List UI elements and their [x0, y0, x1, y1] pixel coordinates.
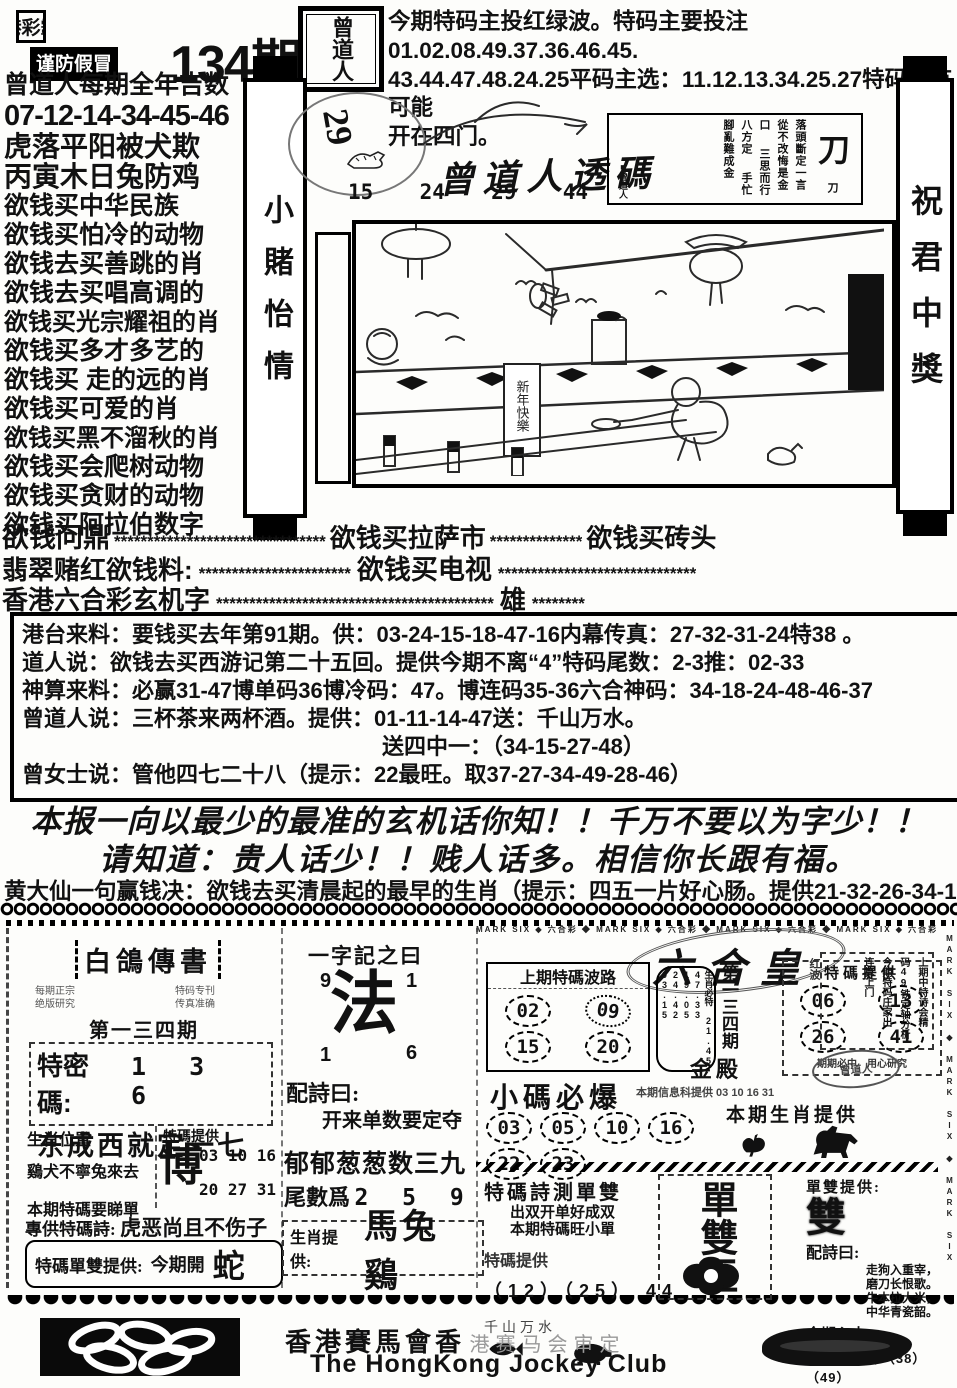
- horse-icon: [806, 1124, 862, 1158]
- seal-text: 曾道人: [330, 16, 352, 82]
- pigeon-issue: 第一三四期: [89, 1014, 199, 1043]
- left-banner-text: 小賭怡情: [253, 194, 297, 402]
- masthead-line1: 香港彩霸王: [16, 10, 176, 43]
- left-line: 欲钱买 走的远的肖: [4, 366, 240, 395]
- left-line: 欲钱买贪财的动物: [4, 482, 240, 511]
- tipsheet-page: 香港彩霸王 谨防假冒 134期 曾道人 今期特码主投红绿波。特码主要投注01.0…: [0, 0, 957, 1388]
- pigeon-ds-animal: 蛇: [213, 1241, 245, 1287]
- chain-divider: [0, 902, 957, 917]
- left-line: 曾道人每期全年吉数: [4, 70, 240, 100]
- fa-sx-animals: 馬兔鷄: [364, 1199, 476, 1297]
- marksix-strip-right: MARK SIX ◆ MARK SIX ◆ MARK SIX ◆ MARK SI…: [945, 934, 954, 1274]
- rightcol-seal-text: 曾道人: [839, 1060, 873, 1078]
- pigeon-code-box: 特密碼: 1 3 6 东成西就定一七: [29, 1042, 273, 1126]
- pigeon-nums1: 03 10 16: [199, 1146, 276, 1165]
- bolou-box: 上期特碼波路 02 09 15 20: [486, 962, 650, 1072]
- fa-shengxiao-box: 生肖提供: 馬兔鷄: [282, 1220, 484, 1276]
- pigeon-smalltext-left: 每期正宗 绝版研究: [35, 986, 75, 1011]
- tips-info-box: 港台来料：要钱买去年第91期。供：03-24-15-18-47-16内幕传真：2…: [10, 612, 957, 802]
- fa-panel: 一字記之曰 9 1 法 1 6 配詩曰: 开来单数要定夺 郁郁葱葱数三九 尾數爲…: [278, 928, 478, 1288]
- rightcol-poem3: 牛本拉大米，: [806, 1291, 938, 1305]
- flower-ornament-icon: [676, 1254, 746, 1298]
- pigeon-code-label: 特密碼:: [37, 1046, 117, 1120]
- mini-title: 生肖必特: [704, 970, 714, 1006]
- knife-signature: ■曾道人: [617, 162, 630, 199]
- info-line: 曾女士说：管他四七二十八（提示：22最旺。取37-27-34-49-28-46）: [22, 761, 955, 789]
- pigeon-big-char: 博: [159, 1144, 203, 1188]
- liuhe-info-small: 本期信息科提供 03 10 16 31: [636, 1084, 774, 1100]
- mini-nums: 03.15: [660, 970, 670, 1020]
- left-line: 欲钱买多才多艺的: [4, 337, 240, 366]
- pigeon-small-left1: 每期正宗: [35, 986, 75, 999]
- xiaoma-num: 16: [648, 1112, 694, 1144]
- fa-line2: 郁郁葱葱数三九: [284, 1144, 466, 1180]
- rightcol-side-note: 红波: [806, 958, 822, 980]
- knife-big-char: 刀: [814, 133, 850, 165]
- masthead-line1-text: 香港彩霸王: [16, 10, 46, 43]
- decorative-empty-box: [315, 232, 351, 484]
- touma-numbers: 15 24 29 44: [348, 180, 588, 204]
- left-line: 07-12-14-34-45-46: [4, 100, 240, 132]
- pigeon-code-value: 1 3 6: [131, 1052, 265, 1110]
- pigeon-th1: 生肖位置: [27, 1126, 155, 1150]
- right-scroll-banner: 祝君中獎: [896, 56, 954, 536]
- pigeon-danshuang-box: 特碼單雙提供: 今期開 蛇: [25, 1240, 283, 1288]
- star-run: ****************************************…: [216, 594, 494, 614]
- pigeon-ds-text: 今期開: [151, 1251, 205, 1277]
- rightcol-peishi-label: 配詩曰:: [806, 1239, 938, 1263]
- tiger-sketch-icon: [344, 146, 396, 172]
- pigeon-smalltext-right: 特码专刊 传真准确: [175, 986, 215, 1011]
- pigeon-small-right1: 特码专刊: [175, 986, 215, 999]
- rightcol-poem4: 中华青瓷韶。: [806, 1305, 938, 1319]
- pigeon-poem-line: 專供特碼詩: 虎恶尚且不伤子: [25, 1212, 267, 1242]
- left-line: 欲钱买光宗耀祖的肖: [4, 308, 240, 337]
- footer-stamp-blob: [762, 1328, 912, 1366]
- pigeon-table: 生肖位置 鷄犬不寧兔來去 本期特碼要睇單 特碼提供 博 03 10 16 20 …: [27, 1126, 261, 1208]
- header-tip-line1: 今期特码主投红绿波。特码主要投注01.02.08.49.37.36.46.45.: [388, 8, 953, 66]
- fa-big-char: 法: [330, 970, 398, 1038]
- pigeon-nums2: 20 27 31: [199, 1180, 276, 1199]
- left-line: 丙寅木日兔防鸡: [4, 162, 240, 192]
- liuhe-issue: 第一三四期: [716, 964, 741, 1052]
- rightcol-line: 今期特码庄家出: [878, 957, 893, 1045]
- touma-number: 29: [491, 180, 516, 204]
- left-line: 欲钱去买善跳的肖: [4, 250, 240, 279]
- liuhe-hall: 金殿: [690, 1052, 742, 1084]
- left-line: 欲钱买中华民族: [4, 192, 240, 221]
- touma-number: 44: [563, 180, 588, 204]
- pigeon-row1: 鷄犬不寧兔來去: [27, 1158, 155, 1182]
- info-line: 港台来料：要钱买去年第91期。供：03-24-15-18-47-16内幕传真：2…: [22, 621, 955, 649]
- touma-number: 15: [348, 180, 373, 204]
- fa-tail-label: 尾數爲: [284, 1185, 350, 1210]
- left-tip-column: 曾道人每期全年吉数 07-12-14-34-45-46 虎落平阳被犬欺 丙寅木日…: [4, 70, 240, 540]
- fa-corner-bl: 1: [320, 1044, 331, 1067]
- left-line: 欲钱买会爬树动物: [4, 453, 240, 482]
- pigeon-poem-label: 專供特碼詩:: [25, 1220, 116, 1239]
- fa-peishi-text: 开来单数要定夺: [322, 1104, 462, 1133]
- bottom-section: 白鴿傳書 每期正宗 绝版研究 特码专刊 传真准确 第一三四期 特密碼: 1 3 …: [6, 920, 954, 1310]
- pigeon-poem: 虎恶尚且不伤子: [120, 1217, 267, 1240]
- left-line: 欲钱买黑不溜秋的肖: [4, 424, 240, 453]
- xiaoma-num: 10: [594, 1112, 640, 1144]
- fa-sx-label: 生肖提供:: [290, 1224, 358, 1272]
- pigeon-small-left2: 绝版研究: [35, 999, 75, 1012]
- pigeon-panel: 白鴿傳書 每期正宗 绝版研究 特码专刊 传真准确 第一三四期 特密碼: 1 3 …: [6, 928, 283, 1288]
- bolou-num: 02: [505, 995, 551, 1027]
- info-line: 送四中一：（34-15-27-48）: [22, 733, 955, 761]
- xiaoma-num: 05: [540, 1112, 586, 1144]
- mini-nums: 24.42: [671, 970, 681, 1020]
- left-line: 欲钱买怕冷的动物: [4, 221, 240, 250]
- pigeon-ds-label: 特碼單雙提供:: [35, 1252, 143, 1277]
- rightcol-ds-label: 單雙提供:: [806, 1176, 938, 1197]
- rightcol-line: 码49铁定轴分析: [896, 957, 911, 1045]
- pigeon-title: 白鴿傳書: [75, 940, 221, 979]
- bolou-num-burst: 09: [583, 992, 633, 1030]
- rightcol-poem1: 走狗入重宰，: [806, 1263, 938, 1277]
- pigeon-small-right2: 传真准确: [175, 999, 215, 1012]
- rightcol-top-box: 上期中特诗会精 码49铁定轴分析 今期特码庄家出 连算上门: [820, 952, 934, 1050]
- bolou-num: 20: [585, 1031, 631, 1063]
- fa-corner-br: 6: [406, 1042, 417, 1065]
- circle-number: 29: [314, 106, 362, 149]
- hkjc-logo: [40, 1318, 240, 1376]
- rightcol-line: 上期中特诗会精: [914, 957, 929, 1045]
- footer-en-text: The HongKong Jockey Club: [310, 1350, 667, 1379]
- knife-poem-box: 刀 刀落頭斷定一言 從不改悔是金口 三思而行八方定 手忙腳亂難成金 ■曾道人: [607, 113, 863, 205]
- liuhe-panel: MARK SIX ◆ 六合彩 ◆ MARK SIX ◆ 六合彩 ◆ MARK S…: [476, 924, 954, 1290]
- star-run: ********: [532, 594, 585, 614]
- left-line: 欲钱买可爱的肖: [4, 395, 240, 424]
- rightcol-line: 连算上门: [860, 957, 875, 1045]
- bolou-title: 上期特碼波路: [488, 964, 648, 989]
- bolou-num: 15: [505, 1031, 551, 1063]
- rightcol-poem2: 磨刀长恨歌。: [806, 1277, 938, 1291]
- xiaoma-num: 03: [486, 1112, 532, 1144]
- mini-nums: 47.33: [693, 970, 703, 1020]
- info-line: 神算来料：必赢31-47博单码36博冷码：47。博连码35-36六合神码：34-…: [22, 677, 955, 705]
- left-line: 虎落平阳被犬欺: [4, 132, 240, 162]
- info-line: 道人说：欲钱去买西游记第二十五回。提供今期不离“4”特码尾数：2-3推：02-3…: [22, 649, 955, 677]
- illustration-frame: 新年快樂: [352, 220, 896, 488]
- zengdaoren-seal: 曾道人: [298, 6, 384, 92]
- rightcol-ds-big: 雙: [806, 1197, 938, 1239]
- touma-number: 24: [420, 180, 445, 204]
- liuhe-sx-title: 本期生肖提供: [726, 1100, 858, 1127]
- left-line: 欲钱去买唱高调的: [4, 279, 240, 308]
- right-banner-text: 祝君中獎: [902, 184, 948, 408]
- info-line: 曾道人说：三杯茶来两杯酒。提供：01-11-14-47送：千山万水。: [22, 705, 955, 733]
- mini-nums: 19.05: [682, 970, 692, 1020]
- slogan-line-2: 请知道：贵人话少！！贱人话多。相信你长跟有福。: [0, 834, 957, 879]
- rooster-icon: [734, 1124, 776, 1158]
- fa-corner-tr: 1: [406, 970, 417, 993]
- illustration-banner-text: 新年快樂: [515, 379, 530, 432]
- newyear-illustration: 新年快樂: [356, 224, 884, 476]
- stripe-divider: [476, 1162, 938, 1172]
